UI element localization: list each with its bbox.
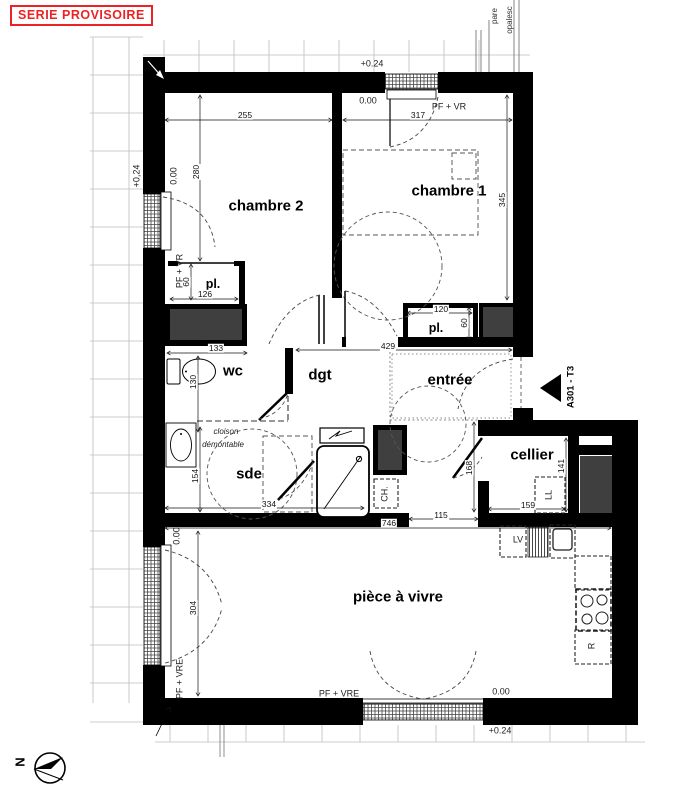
dimension-255: 255 bbox=[237, 111, 253, 120]
room-label-cellier: cellier bbox=[510, 448, 553, 463]
level-top-zero: 0.00 bbox=[359, 97, 377, 106]
room-label-dgt: dgt bbox=[308, 368, 331, 383]
dimension-154: 154 bbox=[191, 468, 200, 484]
level-top-plus024: +0.24 bbox=[361, 60, 384, 69]
level-left-zero-piece: 0.00 bbox=[173, 527, 182, 545]
compass-icon bbox=[34, 753, 65, 783]
party-wall-note-1: pare bbox=[491, 8, 499, 24]
dimension-lines bbox=[165, 95, 611, 696]
level-bottom-plus024: +0.24 bbox=[489, 727, 512, 736]
room-label-entree: entrée bbox=[427, 373, 472, 388]
room-label-piece-a-vivre: pièce à vivre bbox=[353, 590, 443, 605]
floor-plan-canvas: SERIE PROVISOIRE chambre 2 chambre 1 pl.… bbox=[0, 0, 690, 800]
washbasin bbox=[166, 423, 196, 467]
level-left-plus024: +0,24 bbox=[133, 165, 142, 188]
room-label-chambre-1: chambre 1 bbox=[411, 184, 486, 199]
dimension-141: 141 bbox=[557, 458, 566, 474]
window-type-left: PF + VR bbox=[176, 254, 185, 288]
dimension-60-placard-entree: 60 bbox=[460, 317, 469, 328]
window-type-bottom: PF + VRE bbox=[319, 690, 359, 699]
appliance-label-washing-machine: LL bbox=[545, 490, 554, 500]
party-wall-note-2: opalesc bbox=[506, 6, 514, 34]
dimension-168: 168 bbox=[465, 460, 474, 476]
appliance-label-boiler: CH. bbox=[381, 486, 390, 502]
dimension-345: 345 bbox=[498, 192, 507, 208]
level-bottom-zero: 0.00 bbox=[492, 688, 510, 697]
electrical-panel bbox=[320, 428, 364, 443]
appliance-label-fridge: R bbox=[588, 643, 597, 650]
room-label-sde: sde bbox=[236, 467, 262, 482]
terrace-grid bbox=[90, 37, 645, 757]
appliance-label-dishwasher: LV bbox=[513, 536, 523, 545]
level-left-zero-chambre2: 0.00 bbox=[170, 167, 179, 185]
provisional-series-stamp: SERIE PROVISOIRE bbox=[10, 5, 153, 26]
dimension-133: 133 bbox=[208, 344, 224, 353]
note-cloison-line2: démontable bbox=[202, 441, 244, 449]
dimension-120: 120 bbox=[433, 305, 449, 314]
dimension-429: 429 bbox=[380, 342, 396, 351]
room-label-placard-entree: pl. bbox=[429, 322, 444, 335]
dimension-280: 280 bbox=[192, 164, 201, 180]
window-type-left-piece: PF + VRE bbox=[176, 659, 185, 699]
dimension-334: 334 bbox=[261, 500, 277, 509]
shower bbox=[317, 446, 369, 517]
room-label-wc: wc bbox=[223, 364, 243, 379]
dimension-115: 115 bbox=[433, 511, 449, 520]
dimension-304: 304 bbox=[189, 600, 198, 616]
north-label: N bbox=[14, 757, 27, 766]
apartment-marker: A301 - T3 bbox=[566, 366, 576, 408]
dimension-130: 130 bbox=[189, 374, 198, 390]
note-cloison-line1: cloison bbox=[214, 428, 239, 436]
dimension-317: 317 bbox=[410, 111, 426, 120]
dimension-126: 126 bbox=[197, 290, 213, 299]
dimension-159: 159 bbox=[520, 501, 536, 510]
window-type-top: PF + VR bbox=[432, 103, 466, 112]
technical-shafts bbox=[165, 303, 613, 516]
dimension-746: 746 bbox=[381, 519, 397, 528]
walls bbox=[143, 57, 638, 725]
entrance-arrow-icon bbox=[540, 374, 561, 402]
plan-drawing bbox=[0, 0, 690, 800]
room-label-chambre-2: chambre 2 bbox=[228, 199, 303, 214]
